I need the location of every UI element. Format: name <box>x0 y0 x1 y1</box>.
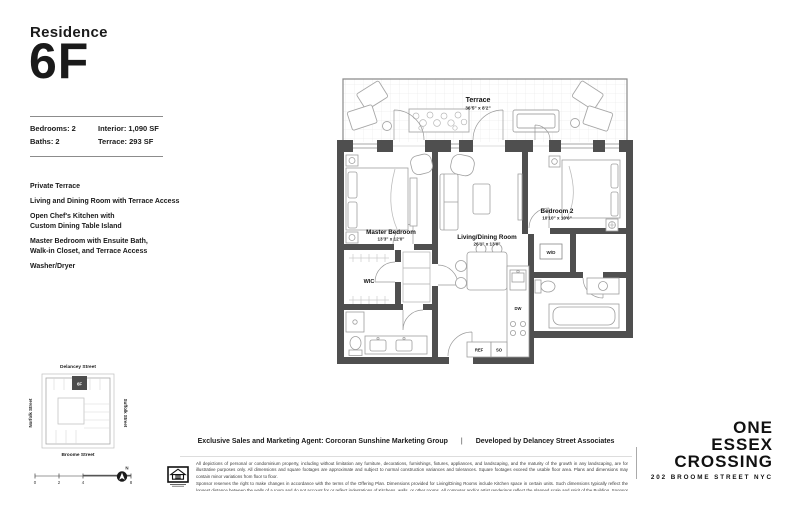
toilet <box>350 337 361 350</box>
agent-separator: | <box>461 438 463 445</box>
burner <box>510 321 515 326</box>
disclaimer-paragraph: All depictions of personal or condominiu… <box>196 461 628 480</box>
master-bedroom-dims: 13'3" x 12'0" <box>378 237 405 242</box>
street-label-broome: Broome Street <box>61 452 94 458</box>
bench <box>410 178 417 226</box>
disclaimer-paragraph: Sponsor reserves the right to make chang… <box>196 481 628 491</box>
armchair <box>409 153 434 177</box>
pillow <box>348 202 357 228</box>
sink <box>370 340 386 351</box>
feature-item: Living and Dining Room with Terrace Acce… <box>30 197 190 207</box>
terrace-dims: 36'5" x 8'2" <box>465 106 491 112</box>
divider-top <box>30 116 163 117</box>
living-dining-dims: 26'1" x 13'0" <box>474 242 501 247</box>
floorplan-sheet: Residence 6F Bedrooms: 2 Baths: 2 Interi… <box>0 0 800 517</box>
wic-label: WIC <box>364 279 375 285</box>
street-label-norfolk: Norfolk Street <box>28 398 33 428</box>
stat-bedrooms: Bedrooms: 2 <box>30 124 76 133</box>
burner <box>510 330 515 335</box>
stat-terrace: Terrace: 293 SF <box>98 137 153 146</box>
brand-address: 202 BROOME STREET NYC <box>610 474 773 481</box>
scale-tick: 2 <box>58 480 61 485</box>
coffee-table <box>473 184 490 214</box>
toilet <box>541 281 555 292</box>
terrace-area: Terrace 36'5" x 8'2" <box>343 79 627 142</box>
floorplan-drawing: Terrace 36'5" x 8'2" <box>337 76 633 368</box>
bedroom2-dims: 10'10" x 10'6" <box>542 216 572 221</box>
terrace-label: Terrace <box>466 97 491 104</box>
brand-line-one: ONE <box>610 419 773 436</box>
toilet-tank <box>349 350 362 356</box>
brand-line-essex: ESSEX <box>610 436 773 453</box>
feature-item: Open Chef's Kitchen with Custom Dining T… <box>30 212 190 232</box>
bath2-fixtures <box>535 278 619 328</box>
brand-logo: ONE ESSEX CROSSING 202 BROOME STREET NYC <box>610 419 773 481</box>
keyplan-map: Delancey Street Broome Street Norfolk St… <box>26 358 158 464</box>
feature-item: Washer/Dryer <box>30 262 190 272</box>
pillow <box>611 192 618 216</box>
feature-item: Master Bedroom with Ensuite Bath, Walk-i… <box>30 237 190 257</box>
living-dining-label: Living/Dining Room <box>457 234 517 241</box>
north-arrow-icon: N <box>114 464 132 484</box>
dining-chair <box>456 261 467 272</box>
master-bath-fixtures <box>346 312 427 356</box>
wd-label: W/D <box>547 250 557 255</box>
scale-tick: 0 <box>34 480 37 485</box>
toilet-tank <box>535 280 541 293</box>
footer-divider <box>180 456 632 457</box>
sink <box>396 340 412 351</box>
legal-disclaimer: All depictions of personal or condominiu… <box>196 461 628 491</box>
side-table <box>571 119 580 128</box>
developer-text: Developed by Delancey Street Associates <box>476 438 615 445</box>
scale-tick: 4 <box>82 480 85 485</box>
burner <box>520 330 525 335</box>
brand-line-crossing: CROSSING <box>610 453 773 470</box>
feature-list: Private Terrace Living and Dining Room w… <box>30 182 190 277</box>
hall-closet <box>403 252 430 302</box>
sink <box>599 282 608 291</box>
dining-table-island <box>467 252 507 290</box>
equal-housing-icon <box>166 466 190 488</box>
dw-label: DW <box>515 306 522 311</box>
street-label-suffolk: Suffolk Street <box>123 399 128 428</box>
dining-chair <box>456 278 467 289</box>
stat-baths: Baths: 2 <box>30 137 60 146</box>
unit-marker-label: 6F <box>77 382 82 387</box>
street-label-delancey: Delancey Street <box>60 364 96 370</box>
agent-line: Exclusive Sales and Marketing Agent: Cor… <box>178 438 634 445</box>
burner <box>520 321 525 326</box>
pillow <box>611 164 618 188</box>
divider-bottom <box>30 156 163 157</box>
stat-interior: Interior: 1,090 SF <box>98 124 159 133</box>
side-table <box>383 122 392 131</box>
agent-text: Exclusive Sales and Marketing Agent: Cor… <box>198 438 448 445</box>
master-bedroom-label: Master Bedroom <box>366 229 416 236</box>
unit-number: 6F <box>29 36 89 86</box>
pillow <box>348 172 357 198</box>
north-label: N <box>125 466 128 471</box>
ref-label: REF <box>475 348 484 353</box>
feature-item: Private Terrace <box>30 182 190 192</box>
media-console <box>518 174 522 220</box>
bedroom2-label: Bedroom 2 <box>541 208 574 215</box>
so-label: SO <box>496 348 503 353</box>
